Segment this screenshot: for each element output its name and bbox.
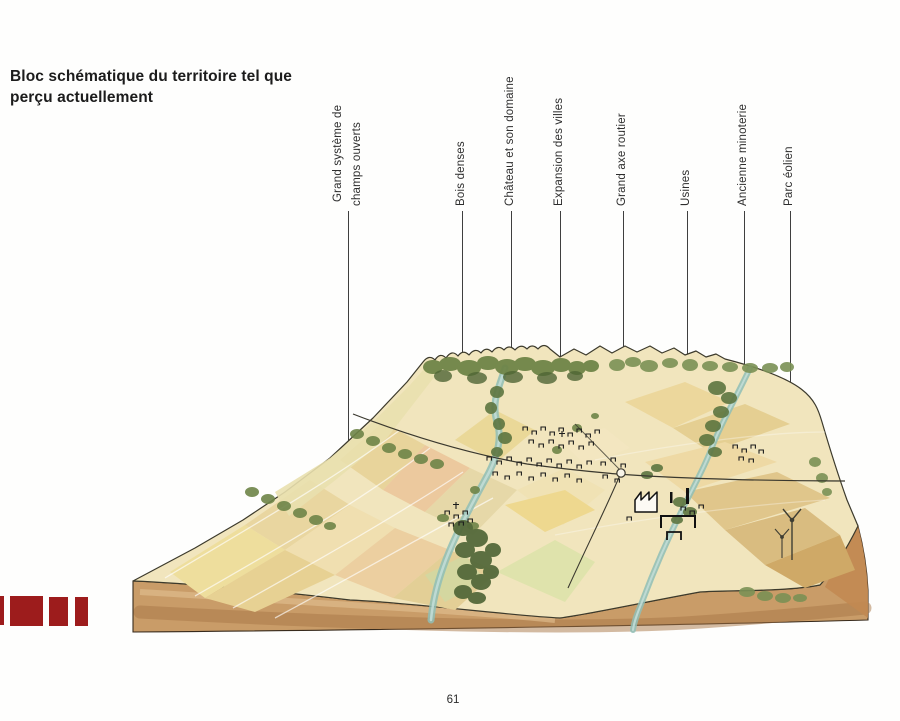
territory-block-illustration bbox=[125, 340, 875, 650]
page-number: 61 bbox=[436, 694, 470, 706]
red-square-decoration bbox=[10, 596, 43, 626]
page-title-line1: Bloc schématique du territoire tel que bbox=[10, 68, 292, 85]
red-square-decoration bbox=[75, 597, 88, 626]
annotation-label-champs-ouverts-line2: champs ouverts bbox=[351, 122, 364, 206]
page-title: Bloc schématique du territoire tel que p… bbox=[10, 66, 320, 108]
roundabout bbox=[617, 469, 625, 477]
annotation-label-minoterie: Ancienne minoterie bbox=[737, 104, 750, 206]
annotation-label-usines: Usines bbox=[680, 170, 693, 206]
annotation-label-bois-denses: Bois denses bbox=[455, 141, 468, 206]
document-page: Bloc schématique du territoire tel que p… bbox=[0, 0, 900, 721]
red-square-decoration bbox=[0, 596, 4, 625]
page-title-line2: perçu actuellement bbox=[10, 89, 153, 106]
red-square-decoration bbox=[49, 597, 68, 626]
annotation-label-expansion-villes: Expansion des villes bbox=[553, 98, 566, 206]
annotation-label-chateau: Château et son domaine bbox=[504, 76, 517, 206]
annotation-label-champs-ouverts-line1: Grand système de bbox=[332, 105, 345, 202]
annotation-label-axe-routier: Grand axe routier bbox=[616, 113, 629, 206]
annotation-label-parc-eolien: Parc éolien bbox=[783, 146, 796, 206]
